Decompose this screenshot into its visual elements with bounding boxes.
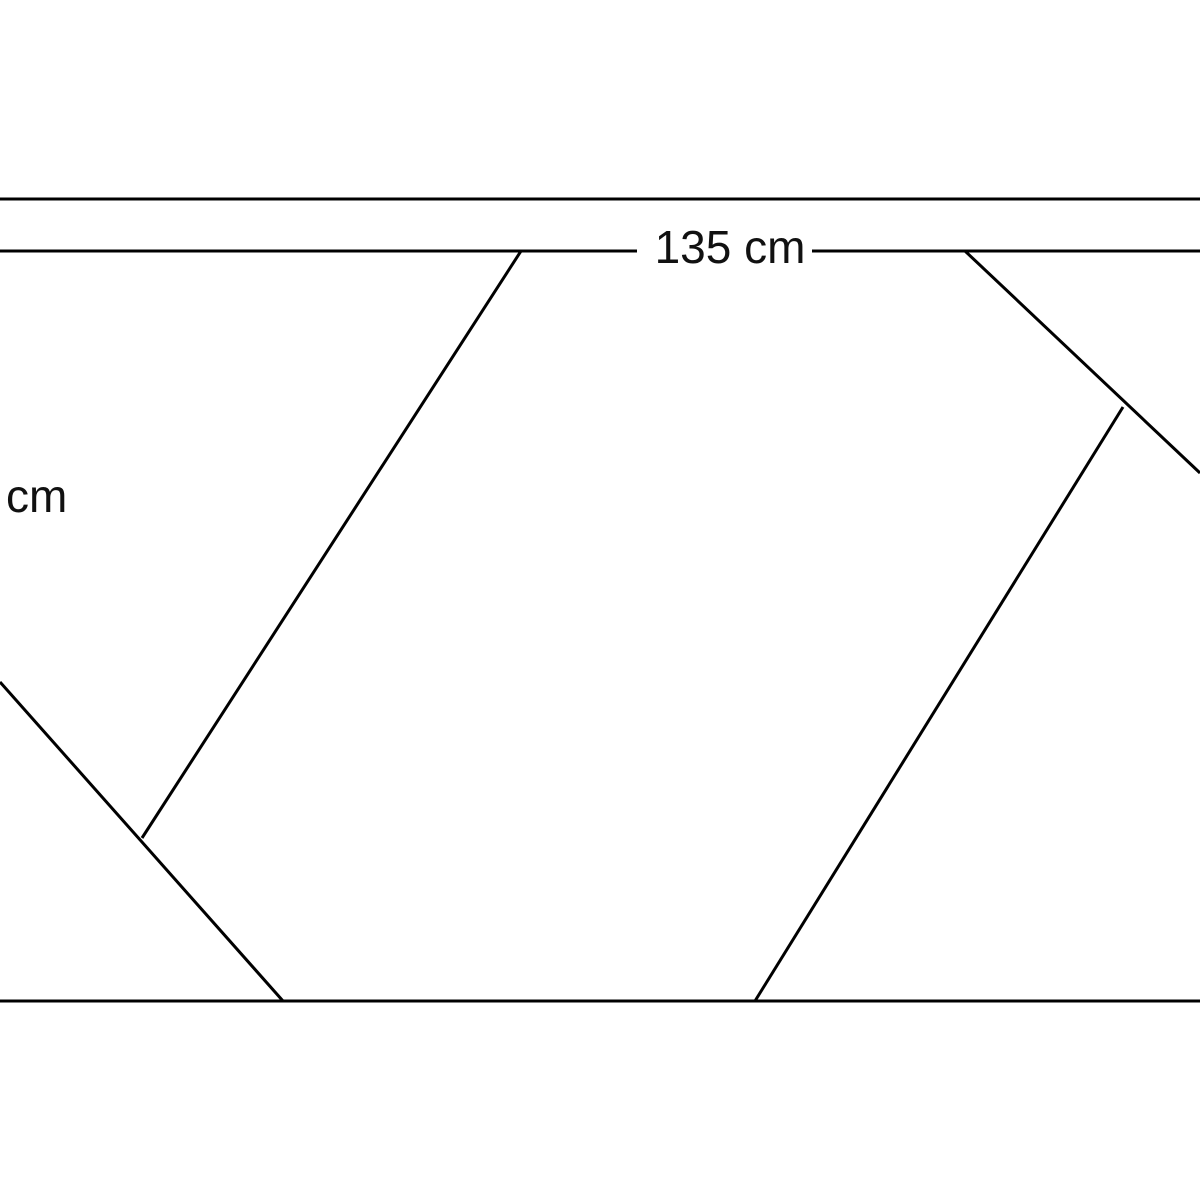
left-height-dimension-label: cm xyxy=(6,470,67,522)
geometry-diagram: 135 cm cm xyxy=(0,0,1200,1200)
top-width-dimension-label: 135 cm xyxy=(655,221,806,273)
diagram-lines xyxy=(0,199,1200,1001)
right-lower-diagonal xyxy=(755,407,1123,1001)
left-upper-diagonal xyxy=(142,251,521,838)
diagram-canvas: 135 cm cm xyxy=(0,0,1200,1200)
right-upper-diagonal xyxy=(965,251,1200,473)
left-lower-diagonal xyxy=(0,682,283,1001)
